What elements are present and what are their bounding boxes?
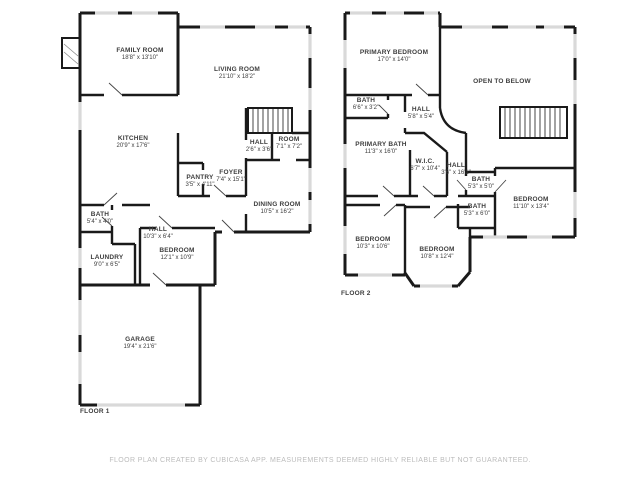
floor1-outer-walls [80, 13, 310, 405]
floorplan-canvas: FAMILY ROOM 18'8" x 13'10" LIVING ROOM 2… [0, 0, 640, 480]
floor2-doors [379, 84, 506, 218]
floor2-label: FLOOR 2 [341, 290, 371, 297]
disclaimer-text: FLOOR PLAN CREATED BY CUBICASA APP. MEAS… [0, 457, 640, 464]
floor2-outer-walls [345, 13, 575, 286]
floor1-plan [62, 13, 310, 405]
floor1-windows [80, 13, 310, 405]
floor2-plan [345, 13, 575, 286]
floor1-stairs [248, 108, 292, 133]
floor1-label: FLOOR 1 [80, 408, 110, 415]
floor2-windows [345, 13, 575, 286]
